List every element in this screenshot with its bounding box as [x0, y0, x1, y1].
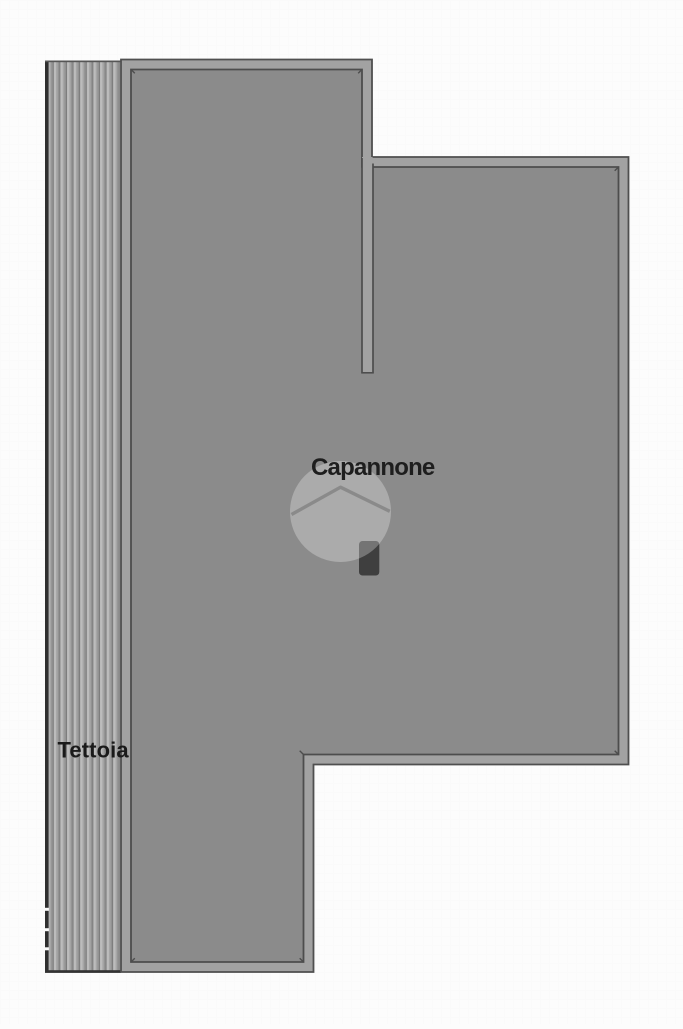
svg-text:Tettoia: Tettoia	[58, 738, 130, 763]
svg-text:Capannone: Capannone	[311, 454, 435, 481]
